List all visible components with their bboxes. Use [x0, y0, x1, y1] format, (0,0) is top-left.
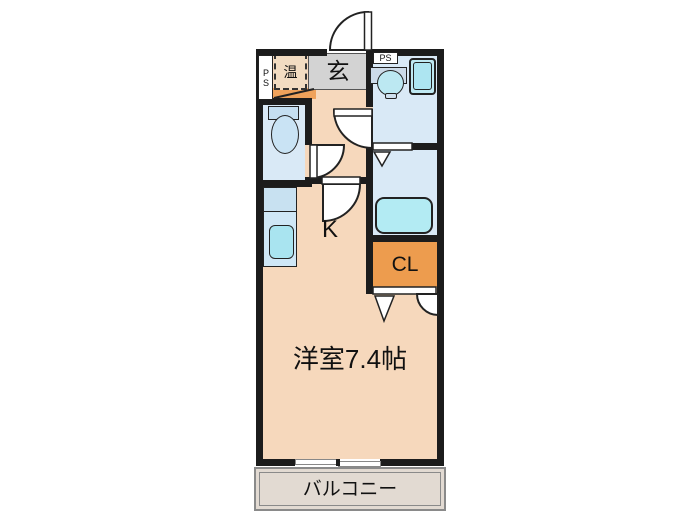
washing-machine-inner: [413, 62, 432, 90]
kitchen-door-stub-left: [305, 177, 322, 184]
water-heater-label: 温: [274, 53, 307, 90]
kitchen-counter-top: [263, 187, 297, 212]
sliding-window-center-tick: [336, 459, 340, 466]
closet-label: CL: [373, 242, 437, 287]
pipe-space-right: PS: [373, 52, 398, 64]
entrance-door-leaf: [365, 12, 372, 50]
toilet-wall-right-upper: [305, 98, 312, 145]
toilet-wall-bottom: [256, 180, 312, 187]
pipe-space-left-label: PS: [261, 68, 270, 88]
entrance-door-arc: [330, 12, 368, 50]
kitchen-sink: [269, 225, 294, 259]
floor-plan: PS PS 温 玄 K CL 洋室7.4帖 バルコニー: [0, 0, 700, 525]
wall-bottom-right: [380, 459, 444, 466]
main-room-label: 洋室7.4帖: [263, 344, 437, 374]
bath-wall-bottom: [366, 235, 444, 242]
wall-right: [437, 49, 444, 466]
kitchen-label: K: [310, 215, 350, 245]
pipe-space-right-label: PS: [379, 54, 391, 63]
bath-wall-top-right: [412, 143, 437, 150]
wall-left: [256, 49, 263, 466]
bathtub: [375, 197, 433, 234]
washbasin-tab: [385, 93, 397, 99]
core-wall-lower: [366, 145, 373, 294]
pipe-space-left: PS: [258, 55, 273, 100]
toilet-bowl: [271, 115, 299, 154]
balcony-label: バルコニー: [254, 470, 446, 508]
sliding-window-left-panel: [295, 459, 337, 465]
entrance-label: 玄: [308, 53, 368, 90]
wall-bottom-left: [256, 459, 295, 466]
